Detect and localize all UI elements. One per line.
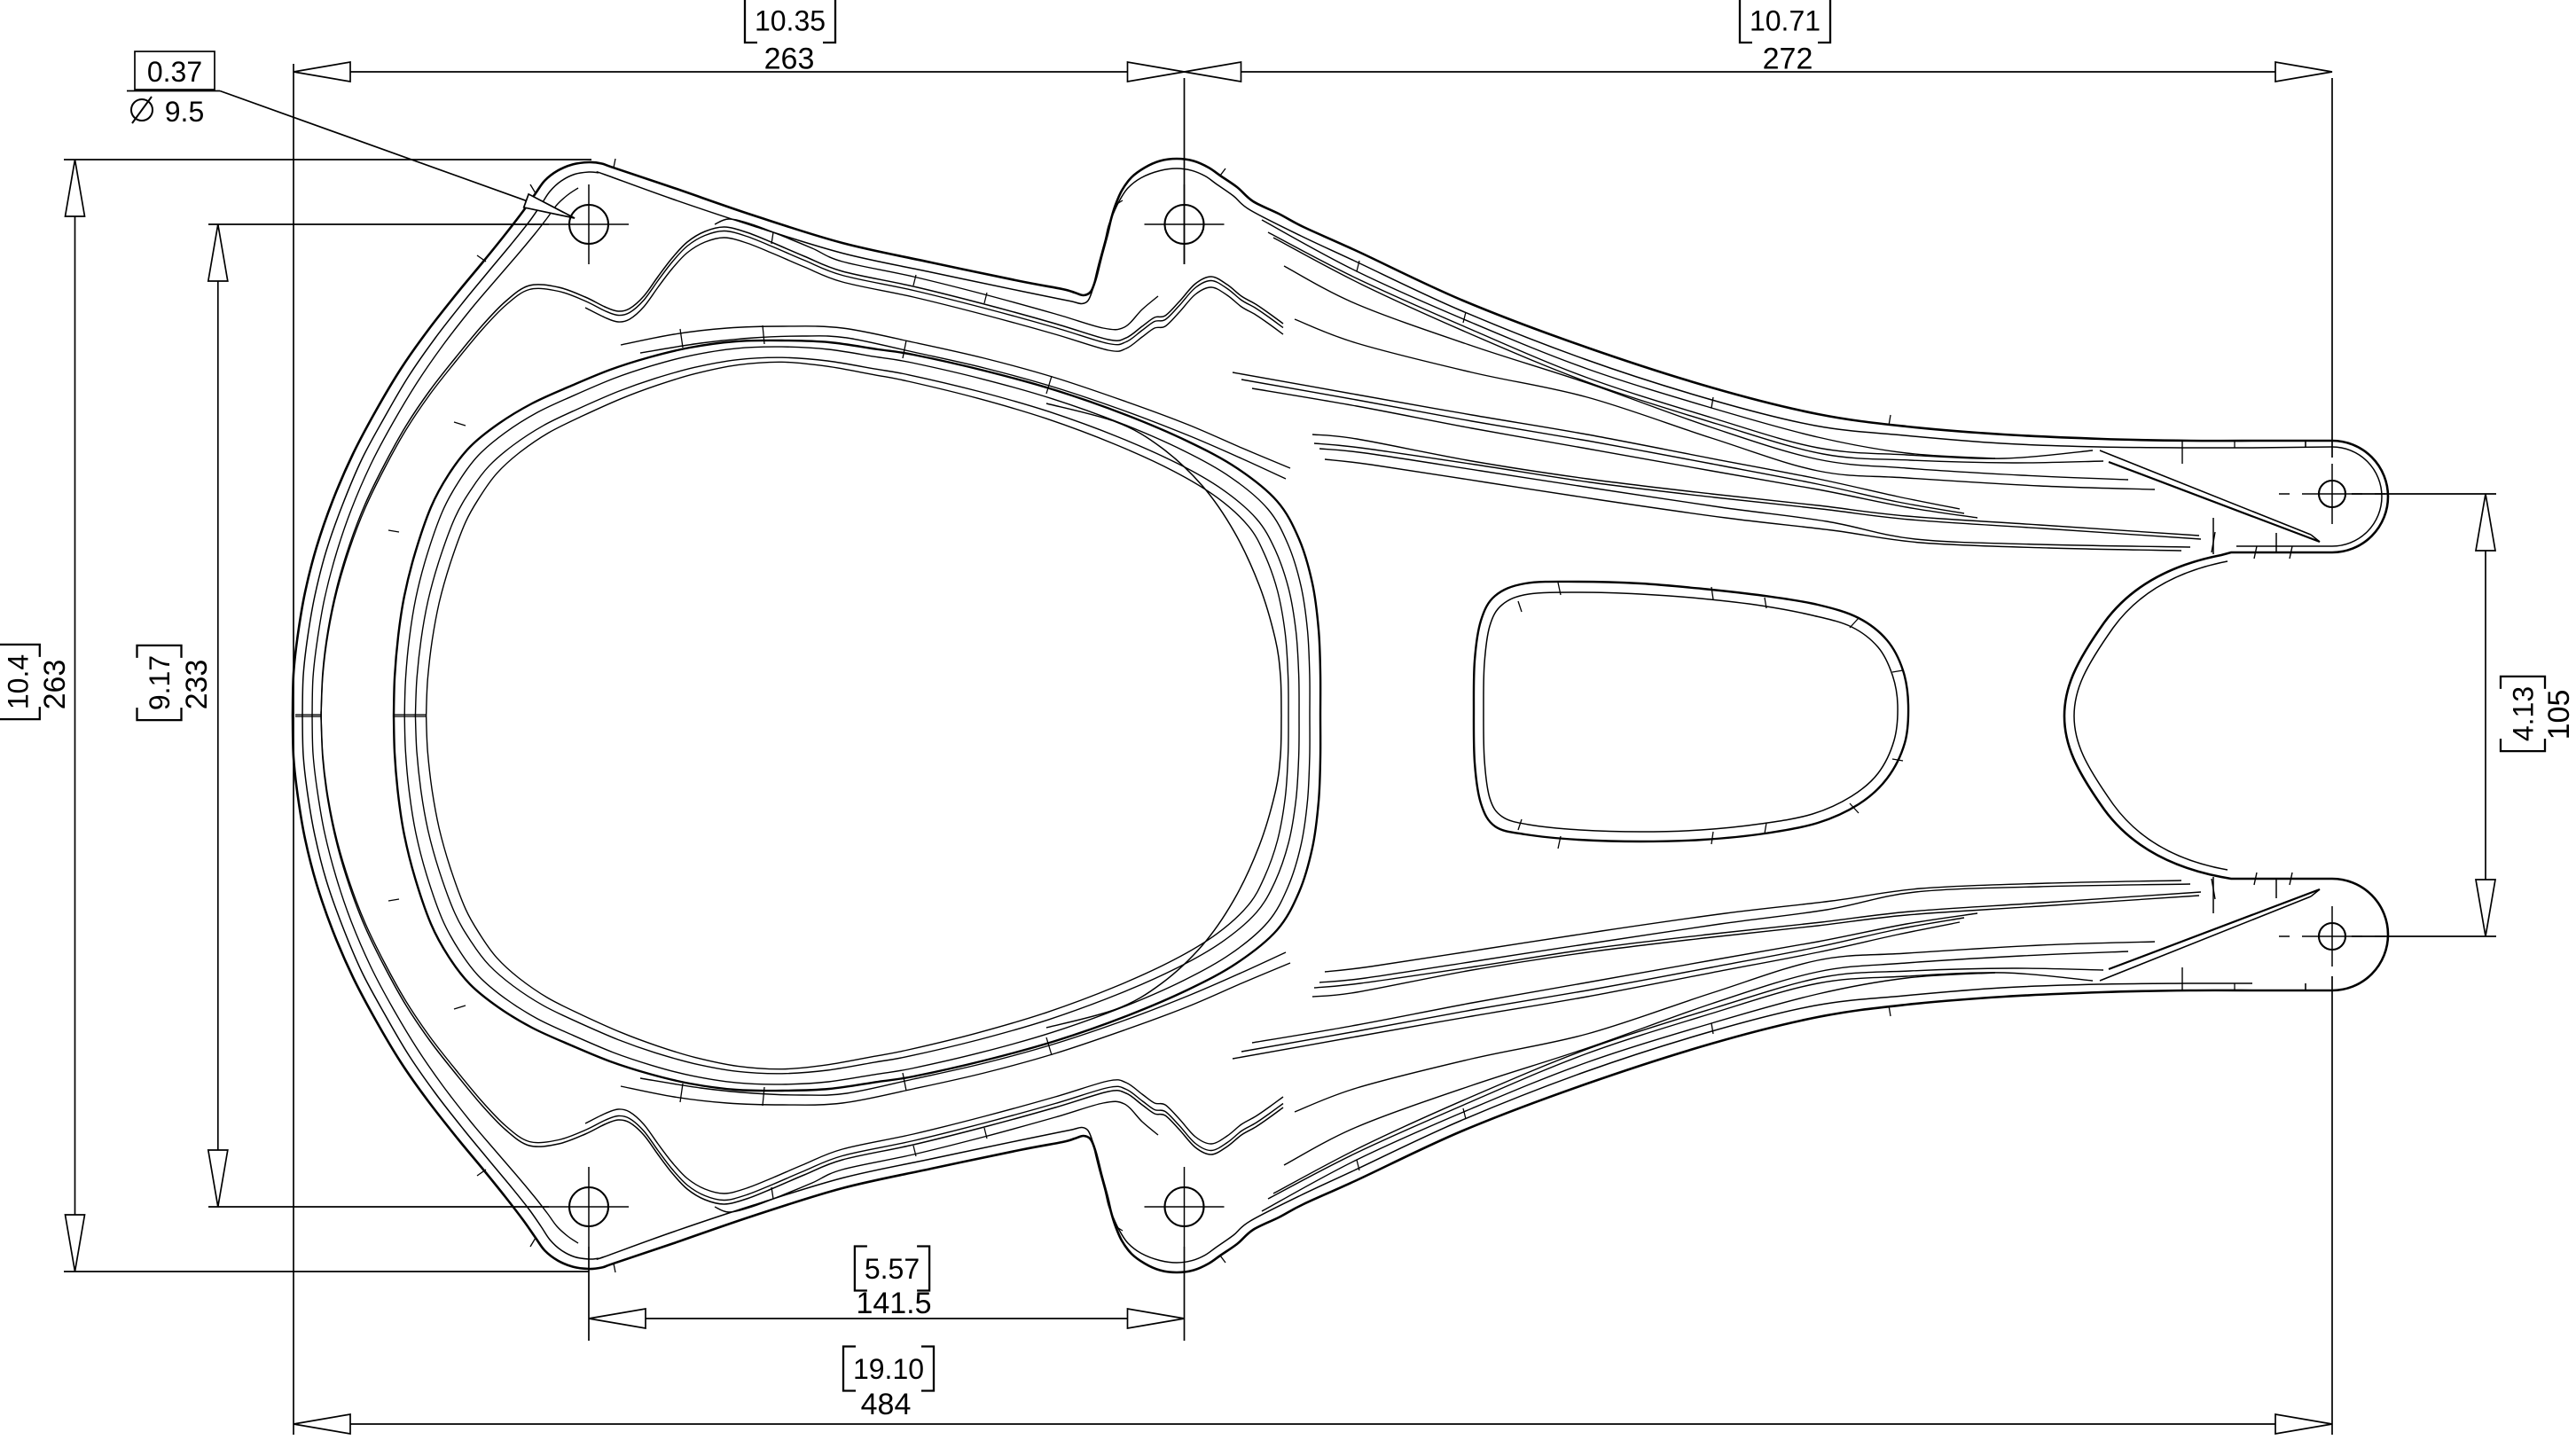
svg-text:0.37: 0.37 [147,56,202,88]
svg-text:484: 484 [861,1388,912,1421]
svg-text:233: 233 [180,660,214,710]
svg-text:19.10: 19.10 [853,1353,924,1385]
svg-text:141.5: 141.5 [856,1287,931,1320]
svg-text:263: 263 [38,660,72,710]
svg-text:9.17: 9.17 [144,655,176,710]
svg-text:272: 272 [1763,43,1813,76]
svg-text:4.13: 4.13 [2508,686,2540,741]
svg-text:263: 263 [764,43,815,76]
svg-text:9.5: 9.5 [165,96,204,128]
svg-text:10.35: 10.35 [755,5,826,37]
svg-text:10.4: 10.4 [2,654,34,709]
svg-text:10.71: 10.71 [1750,5,1820,37]
svg-text:105: 105 [2542,690,2576,740]
svg-text:5.57: 5.57 [865,1253,920,1285]
